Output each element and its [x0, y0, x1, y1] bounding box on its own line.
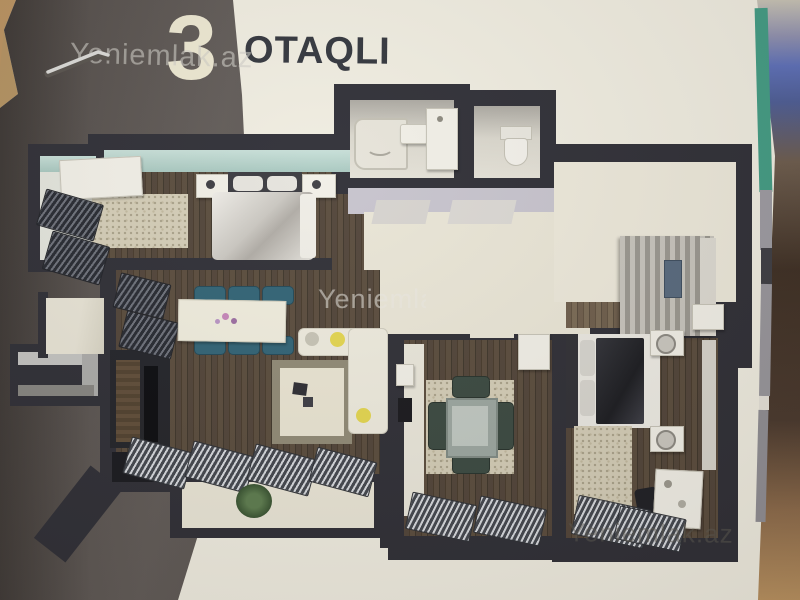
tv-screen: [144, 366, 158, 442]
page-edge-strip-notch: [759, 396, 769, 410]
staple: [42, 40, 118, 84]
sofa-pillow-yellow: [356, 408, 371, 423]
sofa-pillow-yellow: [330, 332, 345, 347]
sink: [400, 124, 428, 144]
floor-plan: Yeniemlak.az Yeniemlak.az: [0, 0, 800, 600]
tv-unit-wood: [116, 360, 140, 442]
lamp: [656, 430, 676, 450]
bed-blanket-dark: [596, 338, 644, 424]
brochure-page: 3 OTAQLI Yeniemlak.az: [0, 0, 800, 600]
sofa-pillow: [305, 332, 319, 346]
watermark-bottom: Yeniemlak.az: [568, 517, 734, 549]
wall-corner-diagonal: [34, 465, 122, 562]
coffee-table: [303, 397, 313, 407]
toilet: [504, 138, 528, 166]
rug: [92, 194, 188, 248]
lamp: [206, 180, 215, 189]
closet-mirror: [664, 260, 682, 298]
page-edge-strip: [761, 248, 772, 286]
coffee-table: [292, 382, 308, 396]
lamp: [656, 334, 676, 354]
kitchen-cabinet: [396, 364, 414, 386]
desk-item: [678, 500, 686, 508]
hall-ceiling-panel: [447, 200, 516, 224]
photo-of-floor-plan-brochure: 3 OTAQLI Yeniemlak.az: [0, 0, 800, 600]
table-flowers: [222, 313, 229, 320]
window-wall-bedroom1: [104, 150, 360, 172]
watermark-center: Yeniemlak.az: [318, 284, 426, 315]
page-edge-strip: [759, 284, 772, 396]
pillow: [580, 380, 595, 416]
bedroom2-wall-face: [702, 340, 716, 470]
pillar: [46, 298, 104, 354]
lamp: [312, 180, 321, 189]
kitchen-door-gap: [470, 322, 514, 338]
page-edge-strip: [760, 190, 772, 250]
kitchen-table-glass: [452, 406, 488, 446]
balcony-parapet: [18, 385, 94, 396]
faucet: [437, 116, 443, 122]
table-flowers: [231, 318, 237, 324]
bed-sheet-fold: [300, 194, 316, 258]
pillow: [267, 176, 297, 191]
bathtub-curve: [366, 138, 394, 156]
bed-headboard: [566, 334, 578, 428]
kitchen-appliance: [398, 398, 412, 422]
pillow: [580, 340, 595, 376]
kitchen-chair: [452, 376, 490, 398]
shoe-cabinet: [692, 304, 724, 330]
desk-item: [664, 480, 672, 488]
table-flowers: [215, 319, 220, 324]
bed-duvet: [212, 192, 314, 260]
hall-ceiling-panel: [371, 200, 430, 224]
wardrobe: [59, 156, 143, 200]
fridge: [518, 334, 550, 370]
pillow: [233, 176, 263, 191]
plant: [236, 484, 272, 518]
